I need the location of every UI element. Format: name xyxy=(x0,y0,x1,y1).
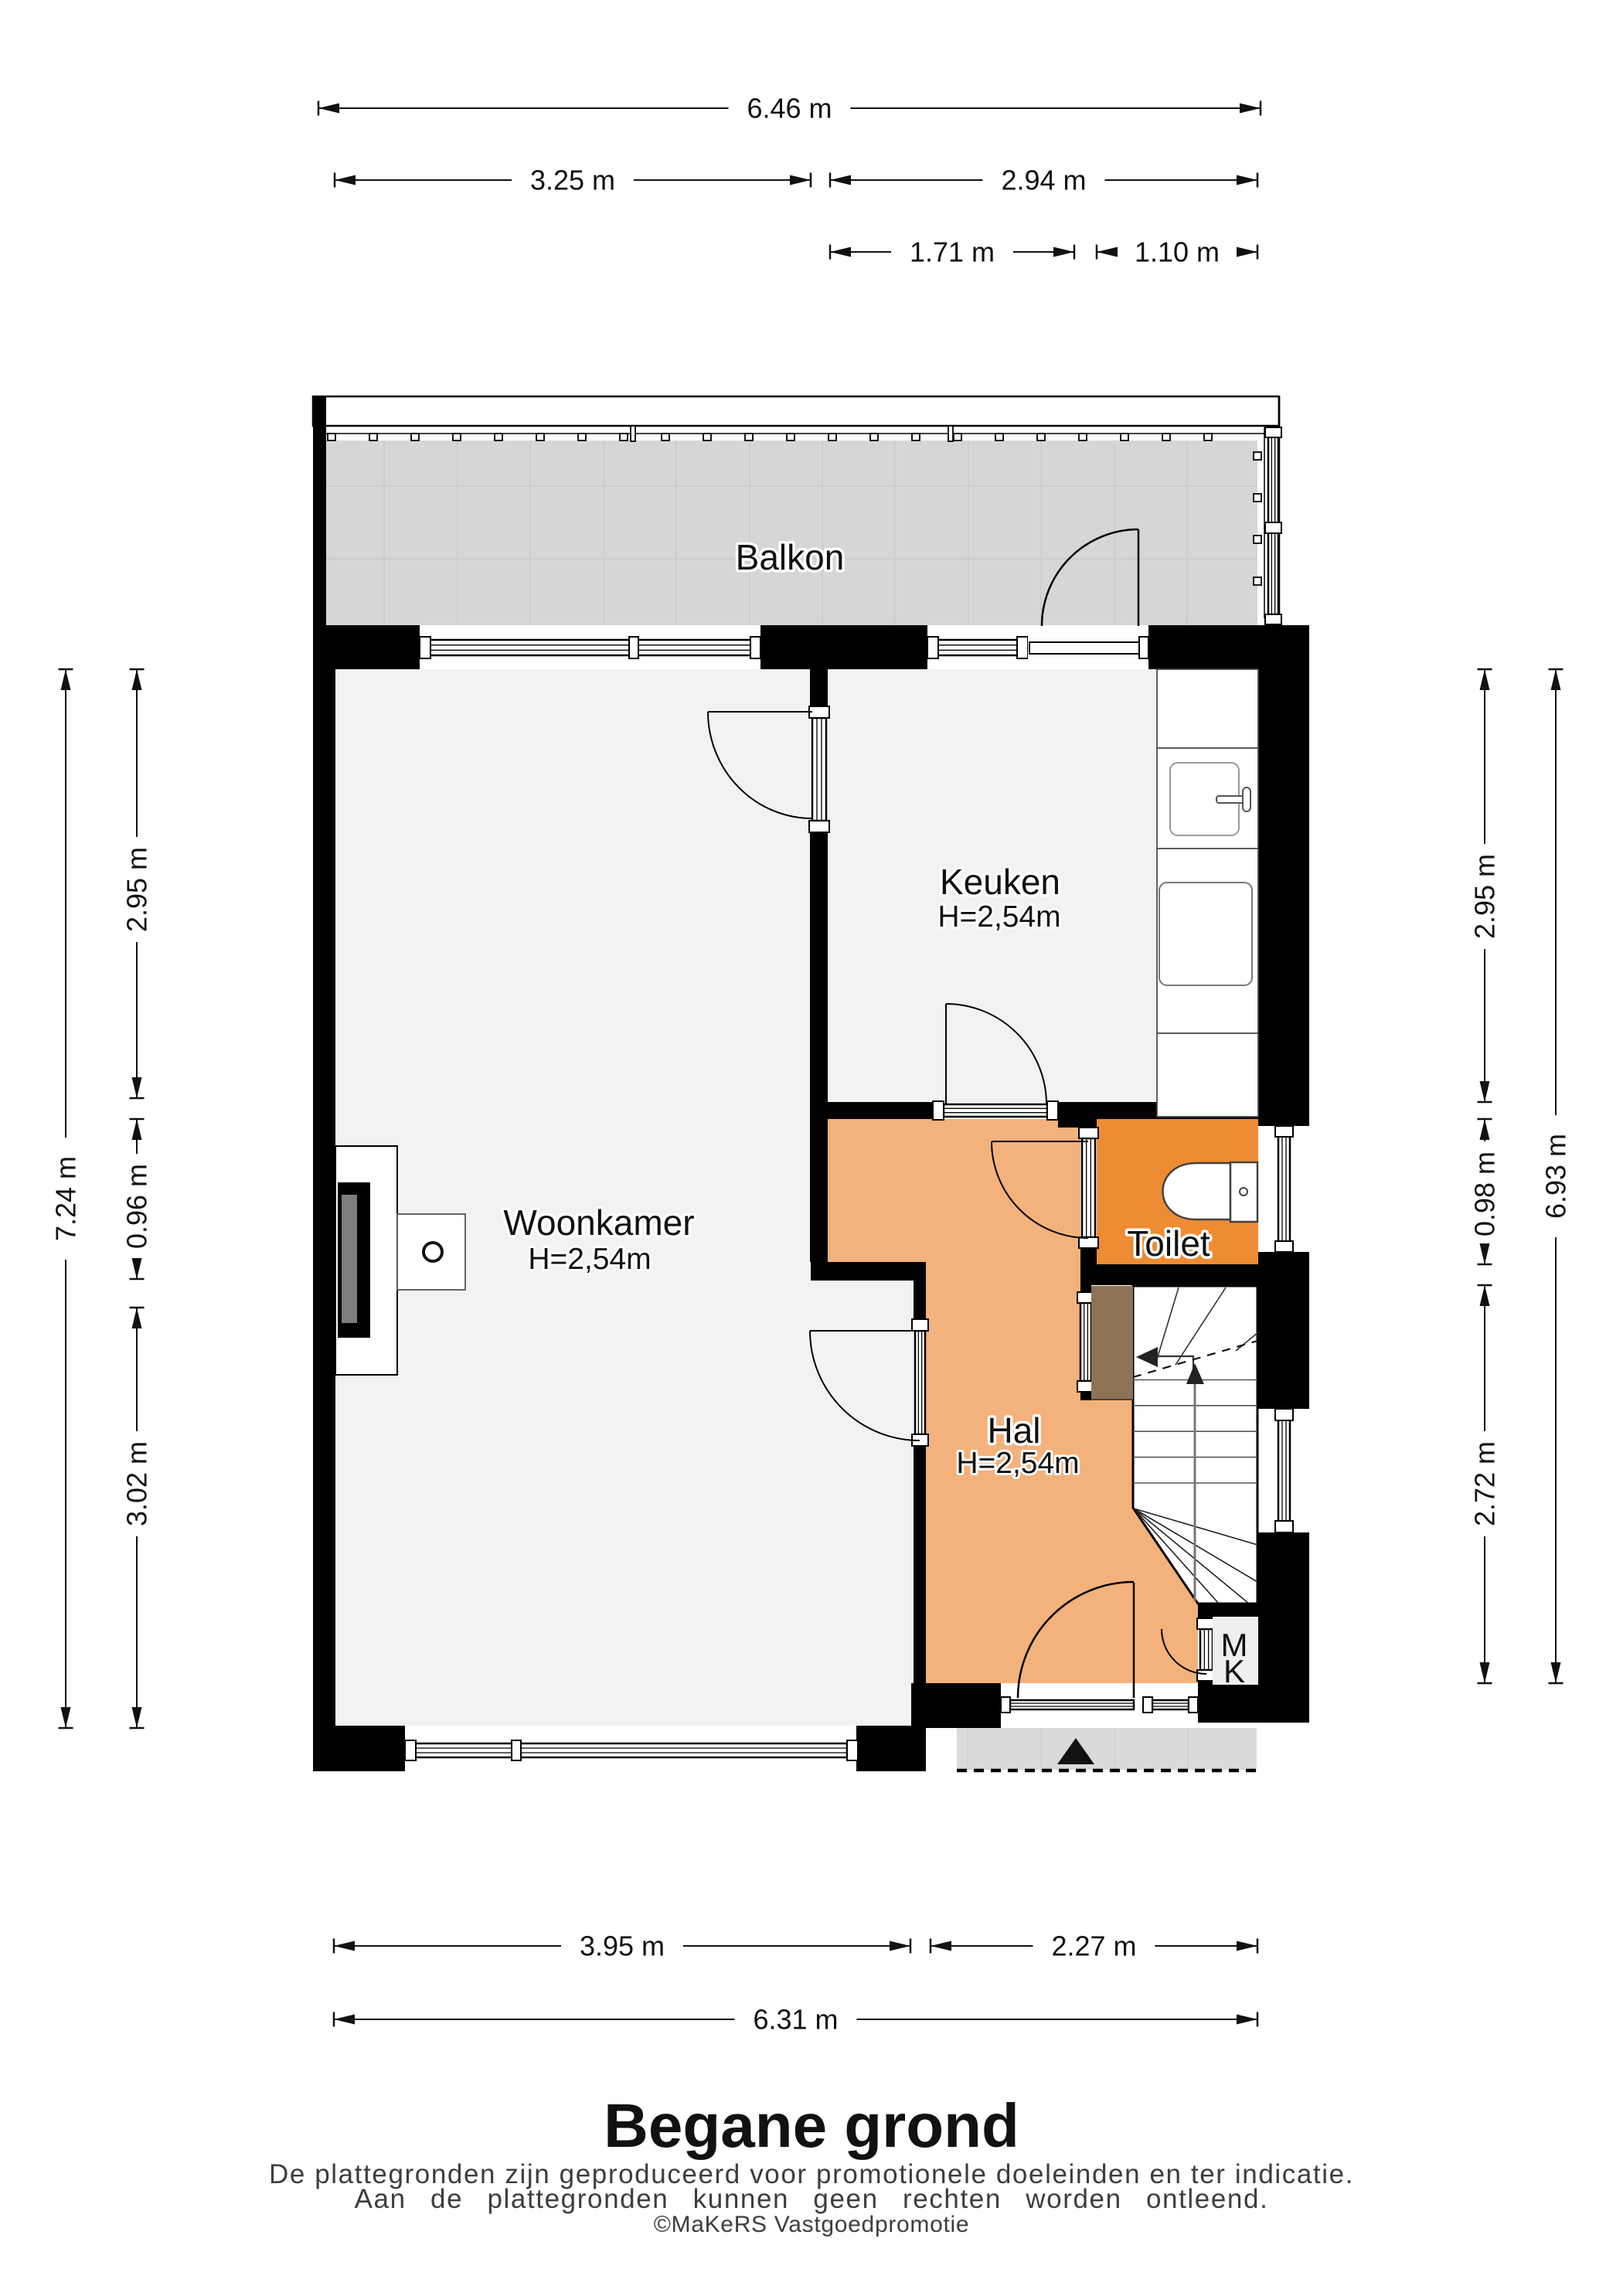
svg-text:3.02 m: 3.02 m xyxy=(121,1441,153,1526)
svg-text:Keuken: Keuken xyxy=(940,862,1060,902)
svg-text:6.31 m: 6.31 m xyxy=(753,2004,838,2036)
svg-text:2.72 m: 2.72 m xyxy=(1469,1441,1501,1526)
svg-text:3.95 m: 3.95 m xyxy=(580,1930,665,1962)
svg-text:Balkon: Balkon xyxy=(736,537,845,577)
svg-text:3.25 m: 3.25 m xyxy=(530,165,615,196)
svg-text:6.46 m: 6.46 m xyxy=(747,93,832,124)
svg-text:Hal: Hal xyxy=(987,1410,1040,1451)
svg-text:1.10 m: 1.10 m xyxy=(1135,236,1220,268)
svg-text:0.96 m: 0.96 m xyxy=(121,1164,153,1249)
svg-text:H=2,54m: H=2,54m xyxy=(956,1447,1079,1480)
svg-text:0.98 m: 0.98 m xyxy=(1469,1151,1501,1236)
svg-text:1.71 m: 1.71 m xyxy=(910,236,995,268)
svg-text:Begane grond: Begane grond xyxy=(604,2091,1019,2160)
svg-text:H=2,54m: H=2,54m xyxy=(528,1243,651,1276)
svg-text:Toilet: Toilet xyxy=(1127,1223,1210,1264)
svg-text:K: K xyxy=(1223,1653,1245,1689)
svg-text:H=2,54m: H=2,54m xyxy=(937,900,1060,934)
svg-text:2.95 m: 2.95 m xyxy=(1469,854,1501,939)
svg-text:2.95 m: 2.95 m xyxy=(121,847,153,932)
svg-text:2.27 m: 2.27 m xyxy=(1051,1930,1136,1962)
svg-text:7.24 m: 7.24 m xyxy=(50,1156,82,1241)
svg-text:6.93 m: 6.93 m xyxy=(1540,1134,1572,1219)
svg-text:Woonkamer: Woonkamer xyxy=(503,1202,694,1243)
svg-text:2.94 m: 2.94 m xyxy=(1001,165,1086,196)
svg-text:Aan de plattegronden kunnen ge: Aan de plattegronden kunnen geen rechten… xyxy=(355,2184,1269,2214)
svg-text:©MaKeRS Vastgoedpromotie: ©MaKeRS Vastgoedpromotie xyxy=(654,2212,970,2237)
